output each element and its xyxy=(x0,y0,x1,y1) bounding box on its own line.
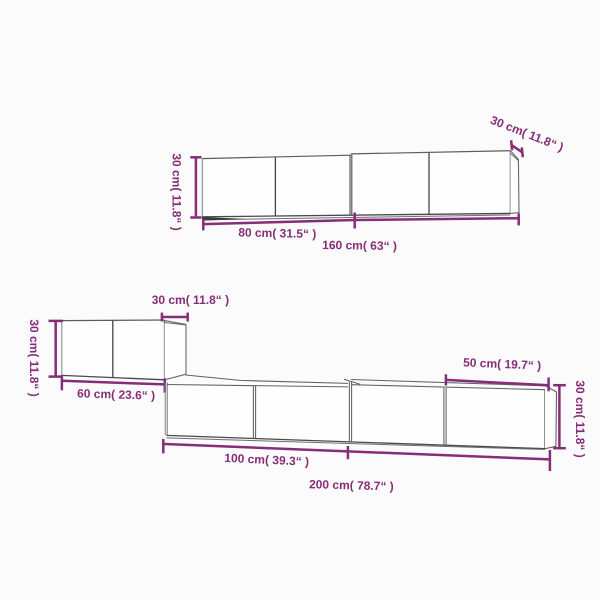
svg-text:30 cm( 11.8“ ): 30 cm( 11.8“ ) xyxy=(573,380,587,457)
svg-text:200 cm( 78.7“ ): 200 cm( 78.7“ ) xyxy=(309,477,394,493)
svg-text:30 cm( 11.8“ ): 30 cm( 11.8“ ) xyxy=(170,153,184,230)
svg-text:30 cm( 11.8“ ): 30 cm( 11.8“ ) xyxy=(152,293,229,307)
svg-text:30 cm( 11.8“ ): 30 cm( 11.8“ ) xyxy=(27,319,41,396)
svg-text:160 cm( 63“ ): 160 cm( 63“ ) xyxy=(322,238,397,253)
svg-text:60 cm( 23.6“ ): 60 cm( 23.6“ ) xyxy=(77,386,155,402)
svg-text:80 cm( 31.5“ ): 80 cm( 31.5“ ) xyxy=(238,225,316,241)
